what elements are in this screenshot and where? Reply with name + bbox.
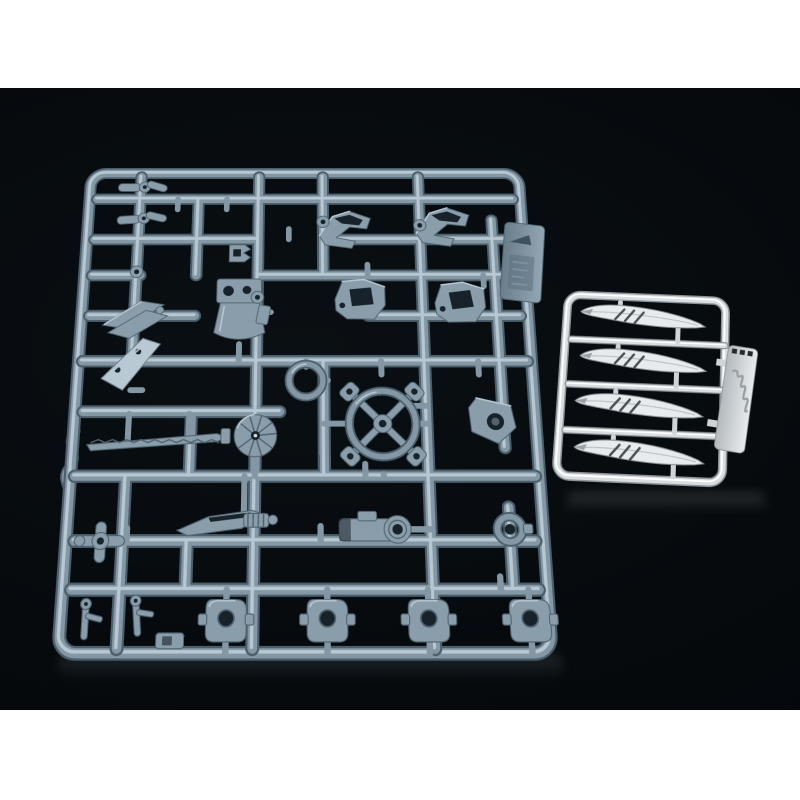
part-boxy-vent-2 — [435, 281, 486, 324]
part-feather-blade-2 — [579, 345, 707, 377]
part-foot-block — [155, 633, 184, 649]
part-square-plate-2 — [300, 600, 356, 642]
part-elbow-joint-1 — [118, 180, 168, 192]
plate-row-stubs — [225, 590, 532, 654]
part-four-spoke-wheel — [324, 361, 429, 476]
part-feather-blade-3 — [574, 389, 704, 421]
part-dagger — [177, 476, 278, 536]
part-feather-blade-4 — [573, 436, 705, 469]
part-claw-bracket — [102, 301, 168, 338]
part-feather-blade-1 — [580, 301, 706, 332]
part-c-clip-1 — [229, 245, 250, 262]
main-runner-gate-tab — [500, 222, 545, 303]
main-runner-svg — [51, 168, 559, 660]
photo-page — [0, 0, 800, 800]
white-margin-bottom — [0, 710, 800, 800]
part-serrated-sword — [85, 414, 277, 476]
black-backdrop — [0, 88, 800, 710]
chrome-runner-svg — [551, 291, 768, 494]
chrome-runner — [551, 291, 768, 494]
reflection-chrome-runner — [566, 492, 766, 522]
main-runner — [51, 168, 559, 660]
part-antenna-fork-2 — [130, 593, 155, 636]
white-margin-top — [0, 0, 800, 88]
part-square-plate-1 — [198, 600, 255, 642]
part-square-plate-3 — [401, 600, 458, 642]
part-antenna-fork-1 — [78, 598, 103, 639]
